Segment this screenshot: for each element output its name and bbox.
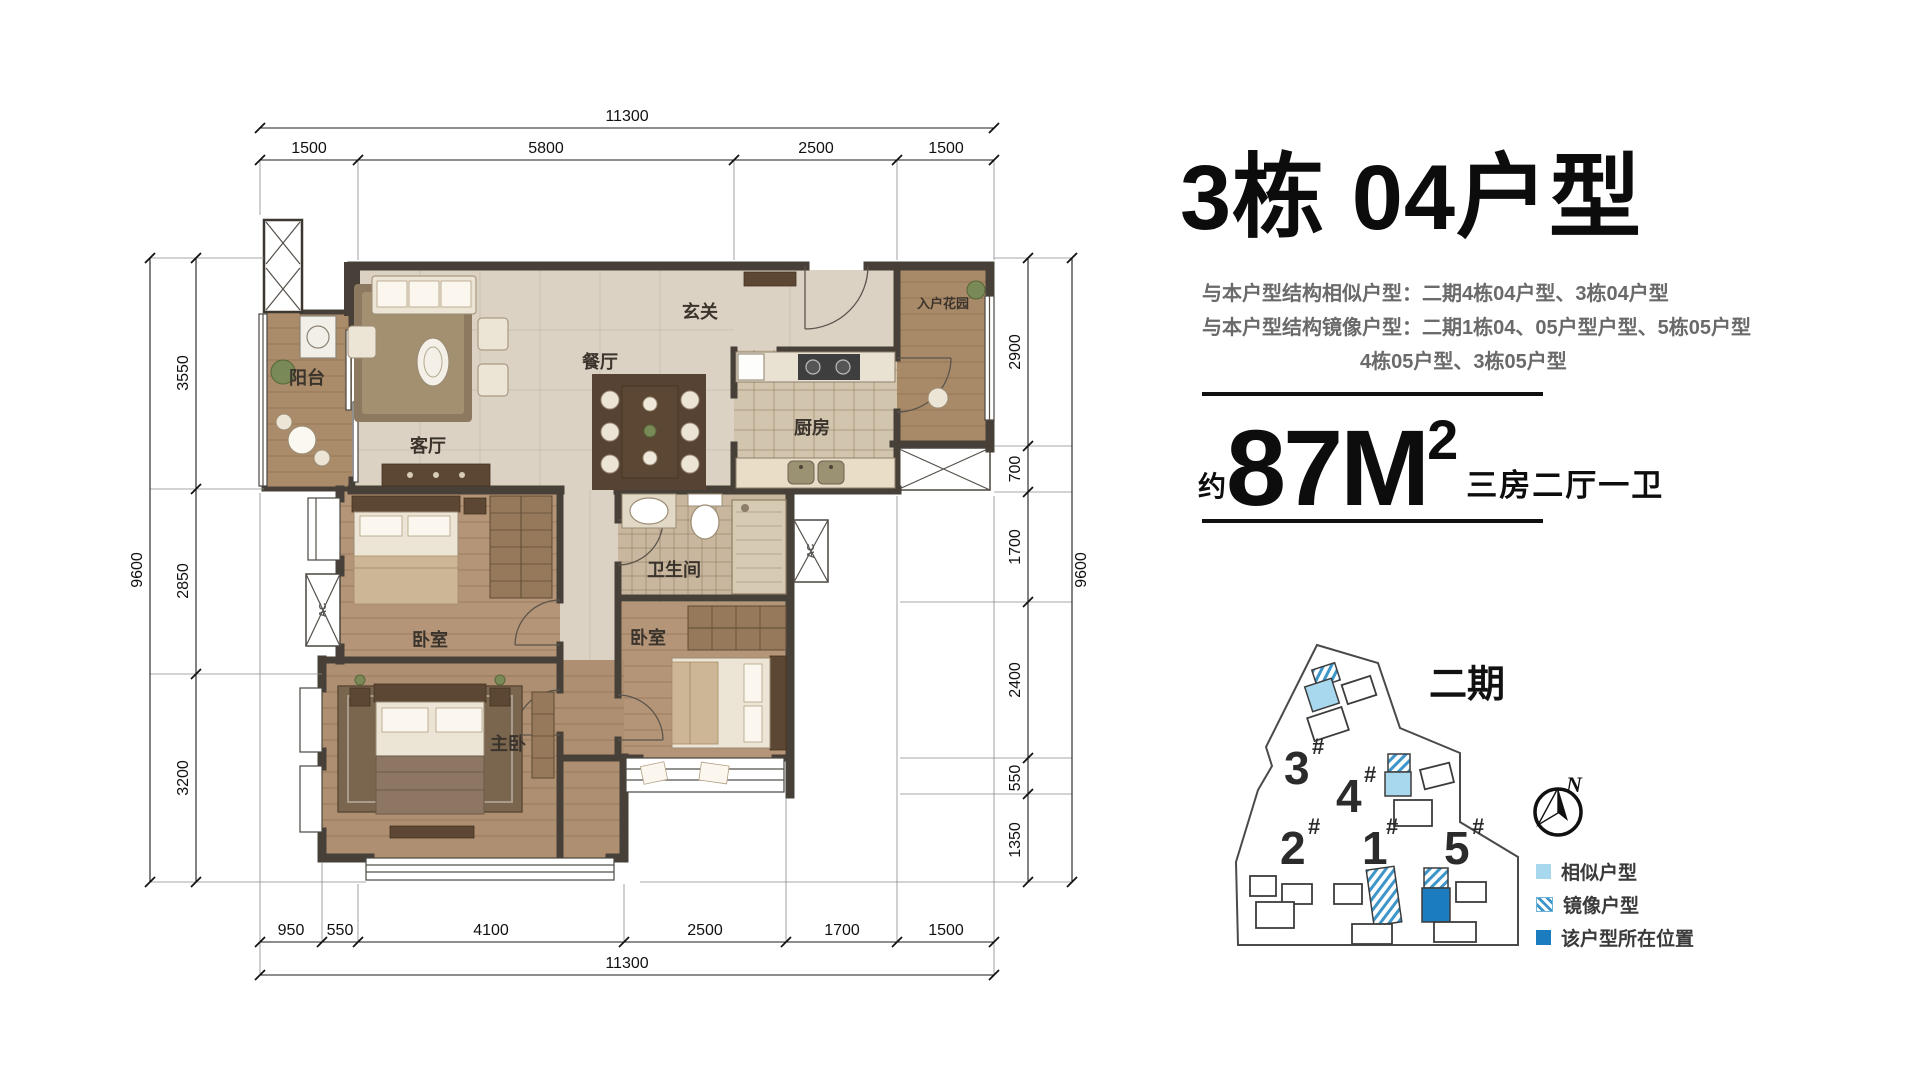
- ac-label: AC: [806, 544, 817, 558]
- room-label-living: 客厅: [410, 435, 446, 456]
- room-label-entry-garden: 入户花园: [917, 296, 969, 311]
- dim-left-overall: 9600: [129, 552, 146, 588]
- building-label-4: 4: [1336, 770, 1362, 822]
- dim-top-s3: 1500: [928, 140, 964, 157]
- site-plan: 二期: [1236, 645, 1583, 945]
- dim-right-s3: 2400: [1007, 662, 1024, 698]
- ac-label: AC: [318, 603, 329, 617]
- divider-top: [1202, 392, 1543, 396]
- compass-n-label: N: [1565, 772, 1583, 797]
- phase-label: 二期: [1429, 664, 1505, 706]
- area-approx-label: 约: [1198, 465, 1226, 513]
- legend-swatch-mirror-icon: [1536, 897, 1553, 912]
- room-label-bedroom2: 卧室: [630, 627, 666, 648]
- dim-bottom-s4: 1700: [824, 922, 860, 939]
- room-label-foyer: 玄关: [682, 301, 718, 322]
- svg-text:#: #: [1364, 762, 1376, 787]
- mirror-units-line: 与本户型结构镜像户型：二期1栋04、05户型户型、5栋05户型: [1202, 311, 1751, 340]
- svg-text:#: #: [1386, 814, 1398, 839]
- legend-swatch-similar-icon: [1536, 864, 1551, 879]
- legend-row-mirror: 镜像户型: [1536, 888, 1694, 921]
- room-label-kitchen: 厨房: [794, 417, 830, 438]
- dim-bottom-overall: 11300: [605, 955, 648, 972]
- dim-top-s0: 1500: [291, 140, 327, 157]
- dim-bottom-s1: 550: [327, 922, 354, 939]
- dim-right-s4: 550: [1007, 765, 1024, 792]
- dim-bottom-s5: 1500: [928, 922, 964, 939]
- svg-text:#: #: [1472, 814, 1484, 839]
- dim-bottom-s0: 950: [278, 922, 305, 939]
- legend-row-current: 该户型所在位置: [1536, 921, 1694, 954]
- legend-row-similar: 相似户型: [1536, 855, 1694, 888]
- area-superscript: 2: [1427, 407, 1458, 472]
- building-label-1: 1: [1362, 822, 1388, 874]
- dim-right-s1: 700: [1007, 456, 1024, 483]
- area-block: 约 87M 2 三房二厅一卫: [1198, 401, 1664, 513]
- legend-label-similar: 相似户型: [1561, 858, 1637, 885]
- dim-left-s0: 3550: [175, 355, 192, 391]
- area-value: 87M: [1226, 424, 1427, 513]
- dim-top-overall: 11300: [605, 108, 648, 125]
- dim-top-s1: 5800: [528, 140, 564, 157]
- legend: 相似户型 镜像户型 该户型所在位置: [1536, 855, 1694, 954]
- dim-top-s2: 2500: [798, 140, 834, 157]
- room-label-master: 主卧: [490, 733, 526, 754]
- similar-units-line: 与本户型结构相似户型：二期4栋04户型、3栋04户型: [1202, 277, 1669, 306]
- legend-label-current: 该户型所在位置: [1561, 924, 1694, 951]
- room-label-bedroom1: 卧室: [412, 629, 448, 650]
- room-label-balcony: 阳台: [289, 367, 325, 388]
- building-label-3: 3: [1284, 742, 1310, 794]
- dim-right-s5: 1350: [1007, 822, 1024, 858]
- dim-bottom-s2: 4100: [473, 922, 509, 939]
- svg-text:#: #: [1308, 814, 1320, 839]
- room-label-bathroom: 卫生间: [647, 559, 701, 580]
- floorplan-sheet: AC AC: [0, 0, 1920, 1080]
- room-label-dining: 餐厅: [581, 351, 618, 372]
- dim-right-s0: 2900: [1007, 334, 1024, 370]
- layout-description: 三房二厅一卫: [1466, 460, 1664, 513]
- page-title: 3栋 04户型: [1180, 152, 1642, 244]
- svg-text:#: #: [1312, 734, 1324, 759]
- legend-label-mirror: 镜像户型: [1563, 891, 1639, 918]
- mirror-units-line-2: 4栋05户型、3栋05户型: [1360, 345, 1567, 374]
- compass-icon: N: [1535, 772, 1583, 835]
- dim-left-s1: 2850: [175, 563, 192, 599]
- floor-plan: AC AC: [129, 108, 1090, 980]
- dim-left-s2: 3200: [175, 760, 192, 796]
- building-label-2: 2: [1280, 822, 1306, 874]
- divider-bottom: [1202, 519, 1543, 523]
- building-label-5: 5: [1444, 822, 1470, 874]
- dim-right-overall: 9600: [1073, 552, 1090, 588]
- dim-right-s2: 1700: [1007, 529, 1024, 565]
- legend-swatch-current-icon: [1536, 930, 1551, 945]
- dim-bottom-s3: 2500: [687, 922, 723, 939]
